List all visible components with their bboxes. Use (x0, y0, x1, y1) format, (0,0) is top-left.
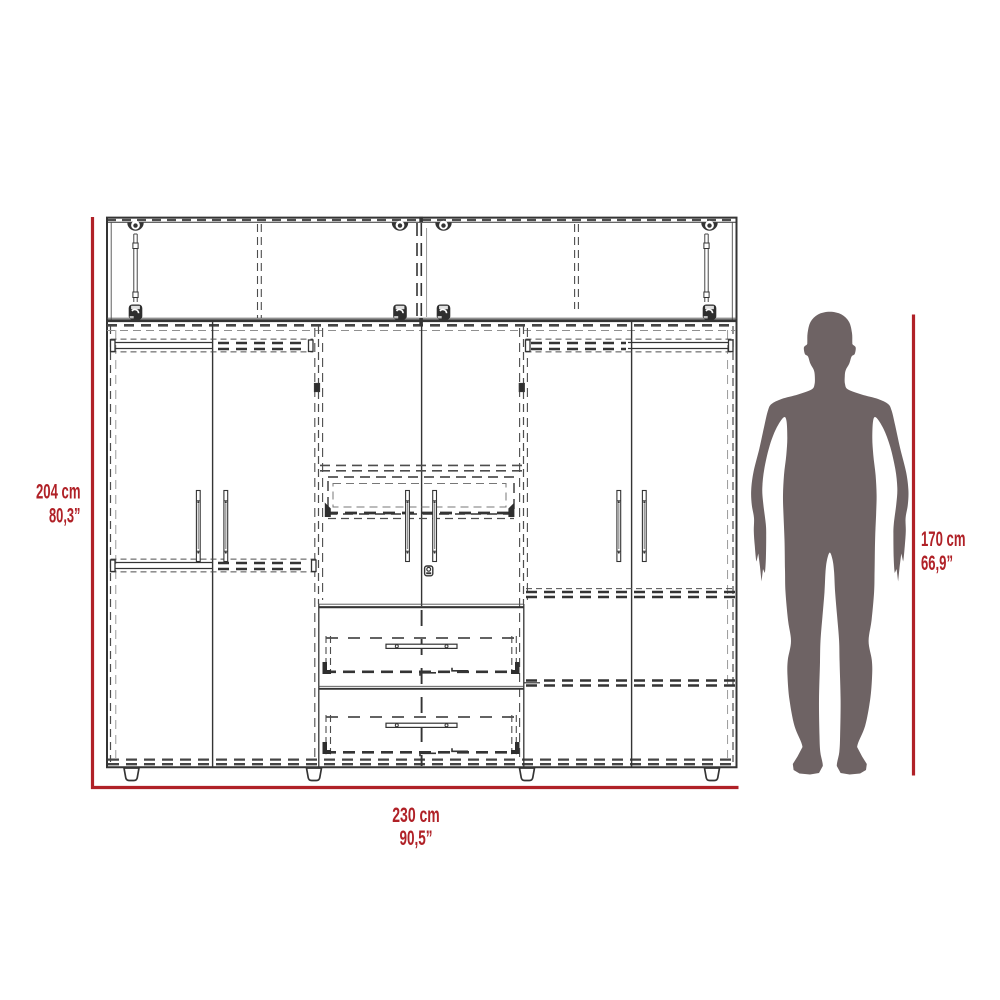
svg-text:66,9”: 66,9” (921, 552, 953, 575)
svg-text:90,5”: 90,5” (400, 827, 433, 850)
svg-text:80,3”: 80,3” (49, 504, 81, 527)
svg-text:170 cm: 170 cm (921, 528, 966, 551)
svg-text:230 cm: 230 cm (392, 804, 440, 827)
svg-text:204 cm: 204 cm (36, 481, 81, 504)
